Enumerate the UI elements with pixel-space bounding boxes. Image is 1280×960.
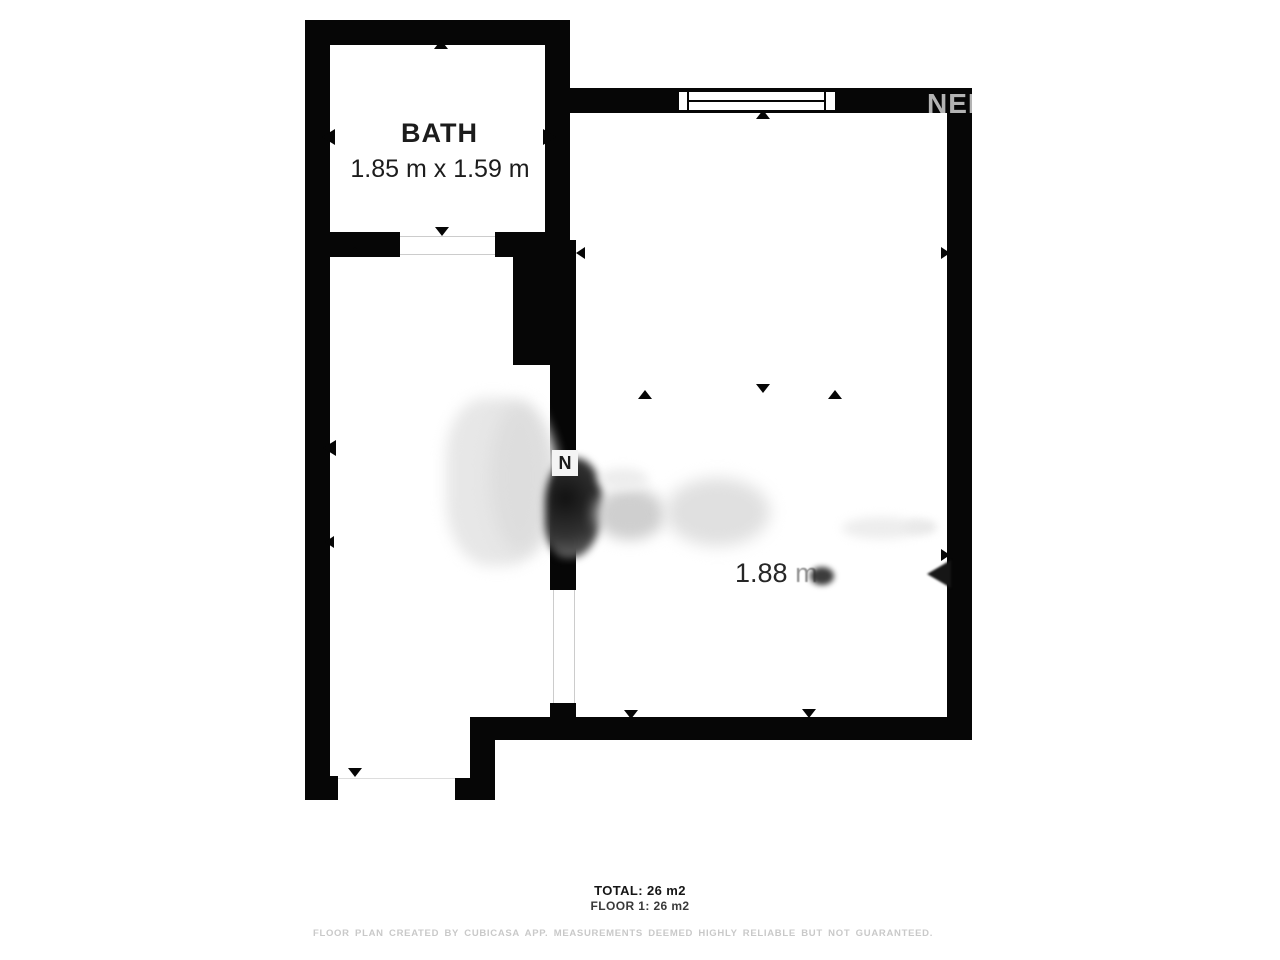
arrow-window-icon <box>756 110 770 119</box>
measurement-unit: m <box>795 558 818 588</box>
floor-area-label: FLOOR 1: 26 m2 <box>0 899 1280 913</box>
north-marker: N <box>552 450 578 476</box>
total-area-label: TOTAL: 26 m2 <box>0 883 1280 898</box>
arrow-bottom-wall-right-icon <box>802 709 816 718</box>
arrow-bottom-wall-left-icon <box>624 710 638 719</box>
watermark-letters: NEF <box>927 89 972 119</box>
wall-mainroom-bottom <box>470 717 972 740</box>
arrow-bath-top-icon <box>434 40 448 49</box>
arrow-ceiling-down-icon <box>756 384 770 393</box>
smudge-faint-1 <box>598 468 648 490</box>
north-marker-letter: N <box>559 453 572 474</box>
floor-plan-canvas: NEF N BATH 1.85 m x 1.59 m 1.88 m TOTAL:… <box>0 0 1280 960</box>
arrow-ceiling-up-right-icon <box>828 390 842 399</box>
mainroom-door-threshold-right <box>574 590 575 703</box>
smudge-right-2 <box>905 519 937 535</box>
mainroom-door-threshold-left <box>553 590 554 703</box>
wall-mainroom-right <box>947 88 972 740</box>
wall-shaft-block <box>513 240 555 365</box>
arrow-bath-door-icon <box>435 227 449 236</box>
bath-door-threshold-bottom <box>400 254 495 255</box>
window-symbol <box>677 90 837 112</box>
arrow-corridor-left-lower-icon <box>325 536 334 548</box>
arrow-bath-left-icon <box>322 129 335 145</box>
disclaimer-text: FLOOR PLAN CREATED BY CUBICASA APP. MEAS… <box>0 928 1246 939</box>
smudge-mid <box>595 488 665 540</box>
wall-entry-foot <box>455 778 495 800</box>
smudge-corridor-inner <box>490 402 550 552</box>
measurement-value: 1.88 <box>735 558 788 588</box>
arrow-bath-right-icon <box>543 129 556 145</box>
bath-room-dimensions: 1.85 m x 1.59 m <box>300 155 580 184</box>
bath-room-label: BATH <box>307 118 572 149</box>
arrow-mainroom-left-icon <box>576 247 585 259</box>
entry-door-threshold <box>338 778 470 779</box>
arrow-corridor-top-icon <box>348 247 362 256</box>
arrow-mainroom-right-upper-icon <box>941 247 950 259</box>
wall-left-foot <box>305 776 338 800</box>
window-glass-line <box>688 100 825 102</box>
arrow-corridor-left-upper-icon <box>323 440 336 456</box>
arrow-door-swing-right-wall-icon <box>927 560 951 588</box>
arrow-ceiling-up-left-icon <box>638 390 652 399</box>
smudge-mainroom <box>665 478 770 546</box>
mainroom-measurement: 1.88 m <box>735 558 818 589</box>
bath-door-threshold-top <box>400 236 495 237</box>
watermark-text: NEF <box>927 89 972 119</box>
arrow-entry-door-icon <box>348 768 362 777</box>
